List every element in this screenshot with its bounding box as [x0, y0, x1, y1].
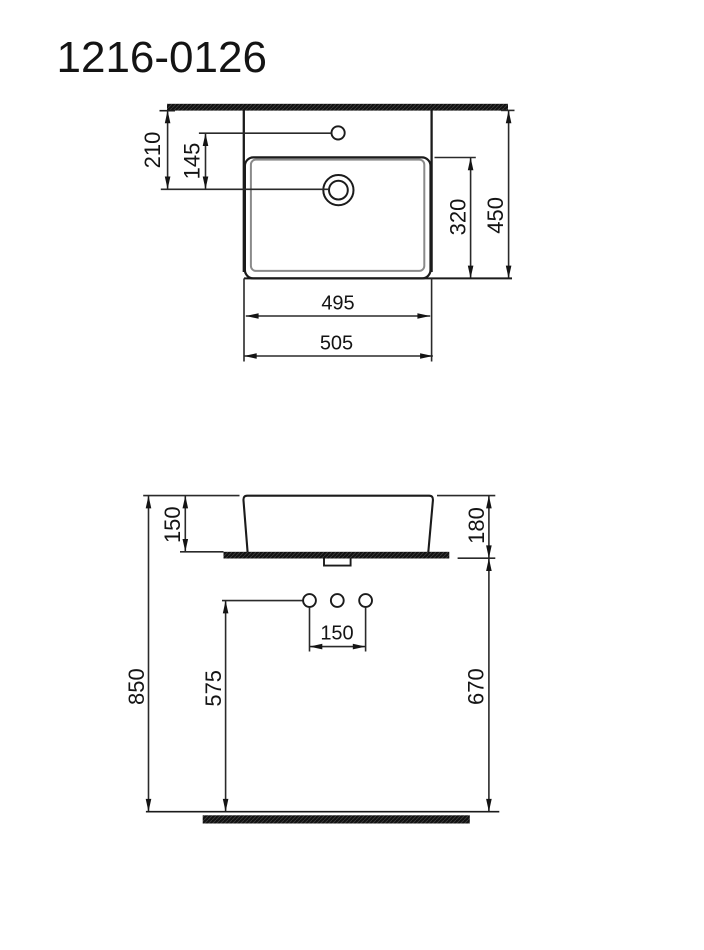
svg-text:450: 450 — [483, 197, 508, 234]
svg-text:505: 505 — [320, 333, 353, 355]
svg-text:575: 575 — [201, 670, 226, 707]
svg-text:670: 670 — [463, 668, 488, 705]
svg-text:150: 150 — [160, 506, 185, 543]
svg-text:1216-0126: 1216-0126 — [57, 33, 267, 82]
svg-text:150: 150 — [320, 623, 353, 645]
svg-text:210: 210 — [140, 132, 165, 169]
svg-text:495: 495 — [321, 293, 354, 315]
svg-text:145: 145 — [180, 143, 205, 180]
svg-text:850: 850 — [124, 668, 149, 705]
svg-text:180: 180 — [464, 507, 489, 544]
svg-text:320: 320 — [446, 199, 471, 236]
